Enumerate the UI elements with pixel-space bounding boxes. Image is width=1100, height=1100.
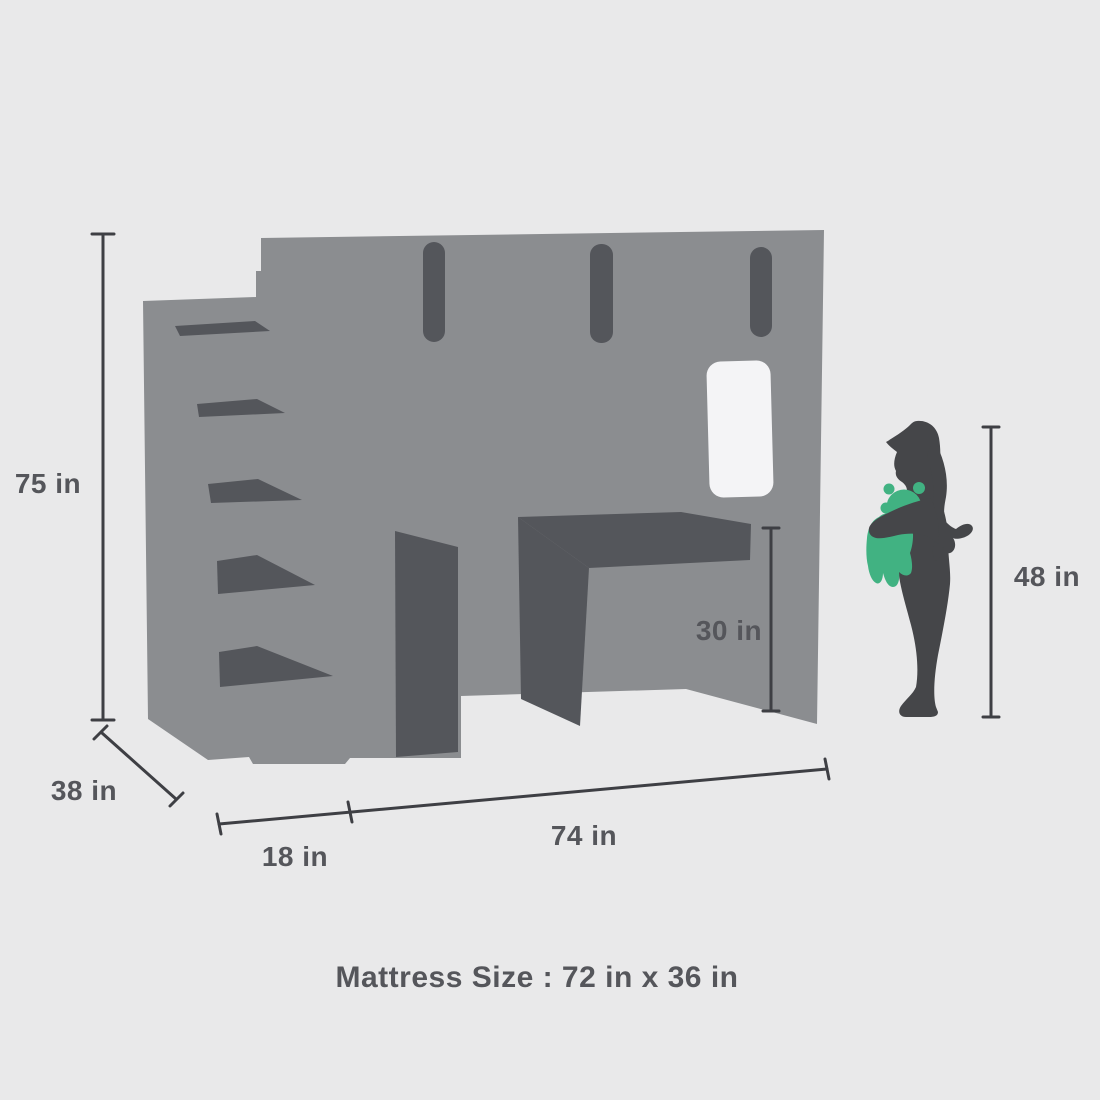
diagram-canvas: 75 in 38 in 18 in 74 in 30 in (0, 0, 1100, 1100)
stair-depth-label: 18 in (262, 841, 328, 872)
teddy-ear (913, 482, 925, 494)
guard-rail-slot (750, 247, 772, 337)
loft-bed-illustration (143, 230, 824, 764)
dimension-diagram: 75 in 38 in 18 in 74 in 30 in (0, 0, 1100, 1100)
window-cutout (706, 360, 774, 498)
bed-depth-label: 38 in (51, 775, 117, 806)
bed-length-label: 74 in (551, 820, 617, 851)
bed-height-label: 75 in (15, 468, 81, 499)
teddy-muzzle (881, 503, 892, 514)
mattress-size-caption: Mattress Size : 72 in x 36 in (336, 961, 739, 994)
desk-clearance-label: 30 in (696, 615, 762, 646)
guard-rail-slot (590, 244, 613, 343)
child-height-label: 48 in (1014, 561, 1080, 592)
guard-rail-slot (423, 242, 445, 342)
partition-panel (395, 531, 458, 757)
teddy-ear (884, 484, 895, 495)
